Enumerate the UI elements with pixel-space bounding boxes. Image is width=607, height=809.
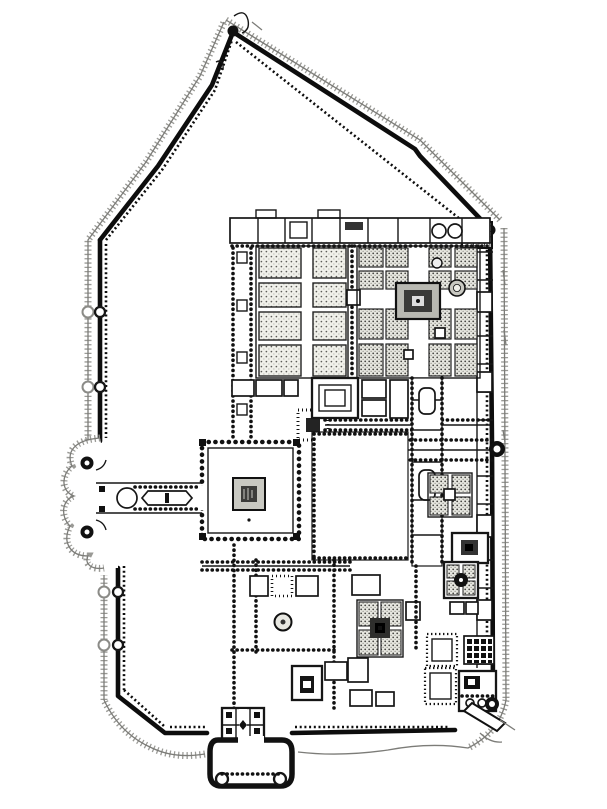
- south-room: [352, 575, 380, 595]
- south-room: [250, 576, 268, 596]
- charbagh-plot: [429, 344, 451, 376]
- south-room: [350, 690, 372, 706]
- south-room: [272, 576, 292, 596]
- plan-drawing: [0, 0, 607, 809]
- hall-cell: [256, 380, 282, 396]
- south-room: [376, 692, 394, 706]
- hypostyle-hall: [464, 636, 494, 664]
- garden-plot: [259, 345, 301, 376]
- court-pavilion-east: [452, 533, 488, 563]
- charbagh-pavilion: [396, 283, 440, 319]
- corridor-room: [419, 388, 435, 414]
- hall-cell: [284, 380, 298, 396]
- charbagh-plot: [386, 248, 408, 267]
- gate-column: [478, 699, 486, 707]
- colonnade-cell: [237, 300, 247, 311]
- charbagh-plot: [359, 309, 383, 339]
- quatrefoil-bath: [444, 562, 478, 598]
- southeast-gate: [459, 671, 515, 742]
- court-pavilion: [233, 478, 265, 522]
- wall-bastion: [95, 382, 105, 392]
- garden-kiosk: [347, 290, 360, 305]
- garden-plot: [259, 312, 301, 340]
- wall-bastion: [95, 307, 105, 317]
- wall-cell: [477, 372, 492, 392]
- hall-cell: [362, 400, 386, 416]
- south-room: [406, 602, 420, 620]
- south-room: [296, 576, 318, 596]
- south-room: [348, 658, 368, 682]
- colonnade-cell: [237, 352, 247, 363]
- garden-plot: [313, 345, 346, 376]
- garden-plot: [259, 283, 301, 307]
- gate-column-base: [117, 488, 137, 508]
- north-range: [230, 210, 490, 246]
- charbagh-plot: [359, 271, 383, 289]
- south-room: [325, 662, 347, 680]
- hall-cell: [390, 380, 408, 418]
- central-court-pavilion: [198, 439, 300, 540]
- bath-cell: [466, 602, 478, 614]
- east-passage: [395, 440, 493, 460]
- range-annex: [256, 210, 276, 218]
- garden-plot: [313, 248, 346, 278]
- great-court: [312, 432, 408, 560]
- range-cell-dark: [345, 222, 363, 230]
- range-dome: [432, 224, 446, 238]
- hall-cell: [232, 380, 254, 396]
- south-barbican: [210, 736, 292, 786]
- nested-hall: [312, 378, 358, 418]
- charbagh-plot: [455, 344, 477, 376]
- wall-cell: [477, 292, 492, 312]
- charbagh-basin-round: [432, 258, 442, 268]
- bath-cell: [450, 602, 464, 614]
- charbagh-plot: [455, 309, 477, 339]
- range-dome: [448, 224, 462, 238]
- garden-plot: [313, 283, 346, 307]
- garden-plot: [259, 248, 301, 278]
- colonnade-cell: [237, 404, 247, 415]
- charbagh-plot: [359, 248, 383, 267]
- charbagh-platform: [435, 328, 445, 338]
- northwest-garden-plots: [259, 248, 346, 376]
- garden-pavilion-south: [357, 600, 403, 657]
- hall-ornament: [165, 493, 169, 503]
- northwest-garden: [256, 246, 360, 378]
- hall-cell: [362, 380, 386, 398]
- range-annex: [318, 210, 340, 218]
- charbagh-plot: [455, 248, 477, 267]
- charbagh-platform: [404, 350, 413, 359]
- wall-bastion: [113, 640, 123, 650]
- charbagh-plot: [359, 344, 383, 376]
- northeast-charbagh: [357, 246, 480, 378]
- entrance-colonnade: [95, 483, 202, 513]
- black-core-room: [292, 666, 322, 700]
- barbican-bastion: [274, 773, 286, 785]
- charbagh-plot: [386, 344, 408, 376]
- wall-bastion: [113, 587, 123, 597]
- central-basin: [444, 489, 455, 500]
- fort-plan-figure: [0, 0, 607, 809]
- apex-bastion: [228, 26, 239, 37]
- colonnade-cell: [237, 252, 247, 263]
- axial-corridor: [412, 378, 442, 566]
- garden-plot: [313, 312, 346, 340]
- wall-cell: [477, 600, 492, 620]
